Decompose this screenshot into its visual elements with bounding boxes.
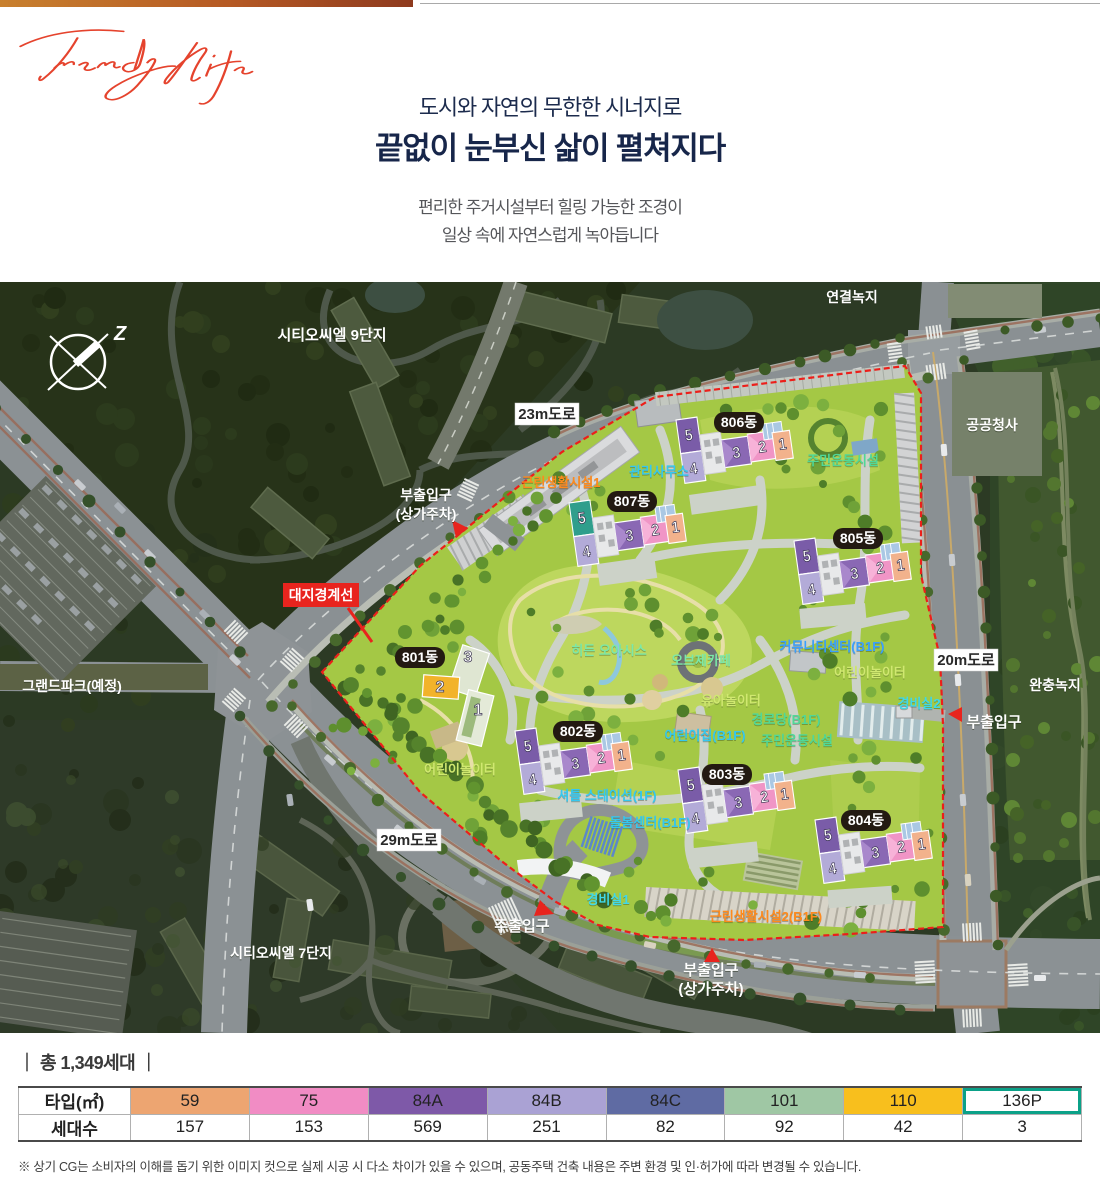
svg-text:유아놀이터: 유아놀이터: [701, 693, 761, 708]
svg-text:근린생활시설2(B1F): 근린생활시설2(B1F): [710, 909, 822, 924]
svg-text:주출입구: 주출입구: [494, 918, 549, 935]
svg-text:어린이집(B1F): 어린이집(B1F): [664, 728, 745, 743]
svg-text:관리사무소: 관리사무소: [629, 464, 689, 479]
svg-text:부출입구: 부출입구: [966, 714, 1021, 731]
svg-text:803동: 803동: [709, 766, 745, 782]
svg-text:오브제카페: 오브제카페: [671, 653, 731, 668]
svg-text:연결녹지: 연결녹지: [826, 289, 878, 305]
svg-text:29m도로: 29m도로: [380, 832, 438, 849]
svg-text:커뮤니티센터(B1F): 커뮤니티센터(B1F): [780, 639, 885, 654]
svg-text:주민운동시설: 주민운동시설: [761, 733, 833, 748]
svg-text:히든 오아시스: 히든 오아시스: [571, 643, 646, 658]
svg-text:근린생활시설1: 근린생활시설1: [522, 475, 601, 490]
svg-text:돌봄센터(B1F): 돌봄센터(B1F): [609, 815, 690, 830]
svg-text:주민운동시설: 주민운동시설: [807, 453, 879, 468]
svg-text:3: 3: [464, 649, 473, 666]
svg-text:801동: 801동: [402, 649, 438, 665]
svg-text:(상가주차): (상가주차): [678, 981, 743, 998]
svg-text:그랜드파크(예정): 그랜드파크(예정): [22, 678, 121, 694]
svg-text:시티오씨엘 7단지: 시티오씨엘 7단지: [230, 945, 332, 961]
svg-text:경로당(B1F): 경로당(B1F): [751, 712, 820, 727]
svg-text:어린이놀이터: 어린이놀이터: [834, 665, 906, 680]
svg-text:부출입구: 부출입구: [683, 962, 738, 979]
svg-text:806동: 806동: [721, 414, 757, 430]
svg-text:셔틀 스테이션(1F): 셔틀 스테이션(1F): [557, 788, 656, 803]
svg-text:부출입구: 부출입구: [400, 487, 452, 503]
svg-text:어린이놀이터: 어린이놀이터: [424, 762, 496, 777]
svg-text:(상가주차): (상가주차): [396, 506, 457, 522]
svg-text:경비실1: 경비실1: [586, 892, 629, 907]
svg-text:804동: 804동: [848, 812, 884, 828]
svg-text:Z: Z: [113, 323, 127, 345]
svg-text:802동: 802동: [560, 723, 596, 739]
svg-text:대지경계선: 대지경계선: [289, 587, 353, 603]
svg-text:805동: 805동: [840, 530, 876, 546]
svg-text:2: 2: [436, 679, 445, 696]
svg-text:완충녹지: 완충녹지: [1029, 677, 1081, 693]
svg-text:시티오씨엘 9단지: 시티오씨엘 9단지: [277, 327, 386, 344]
svg-text:1: 1: [474, 702, 483, 719]
svg-text:공공청사: 공공청사: [966, 417, 1018, 433]
svg-text:경비실2: 경비실2: [897, 696, 940, 711]
svg-text:807동: 807동: [614, 493, 650, 509]
svg-text:23m도로: 23m도로: [518, 406, 576, 423]
svg-text:20m도로: 20m도로: [937, 652, 995, 669]
